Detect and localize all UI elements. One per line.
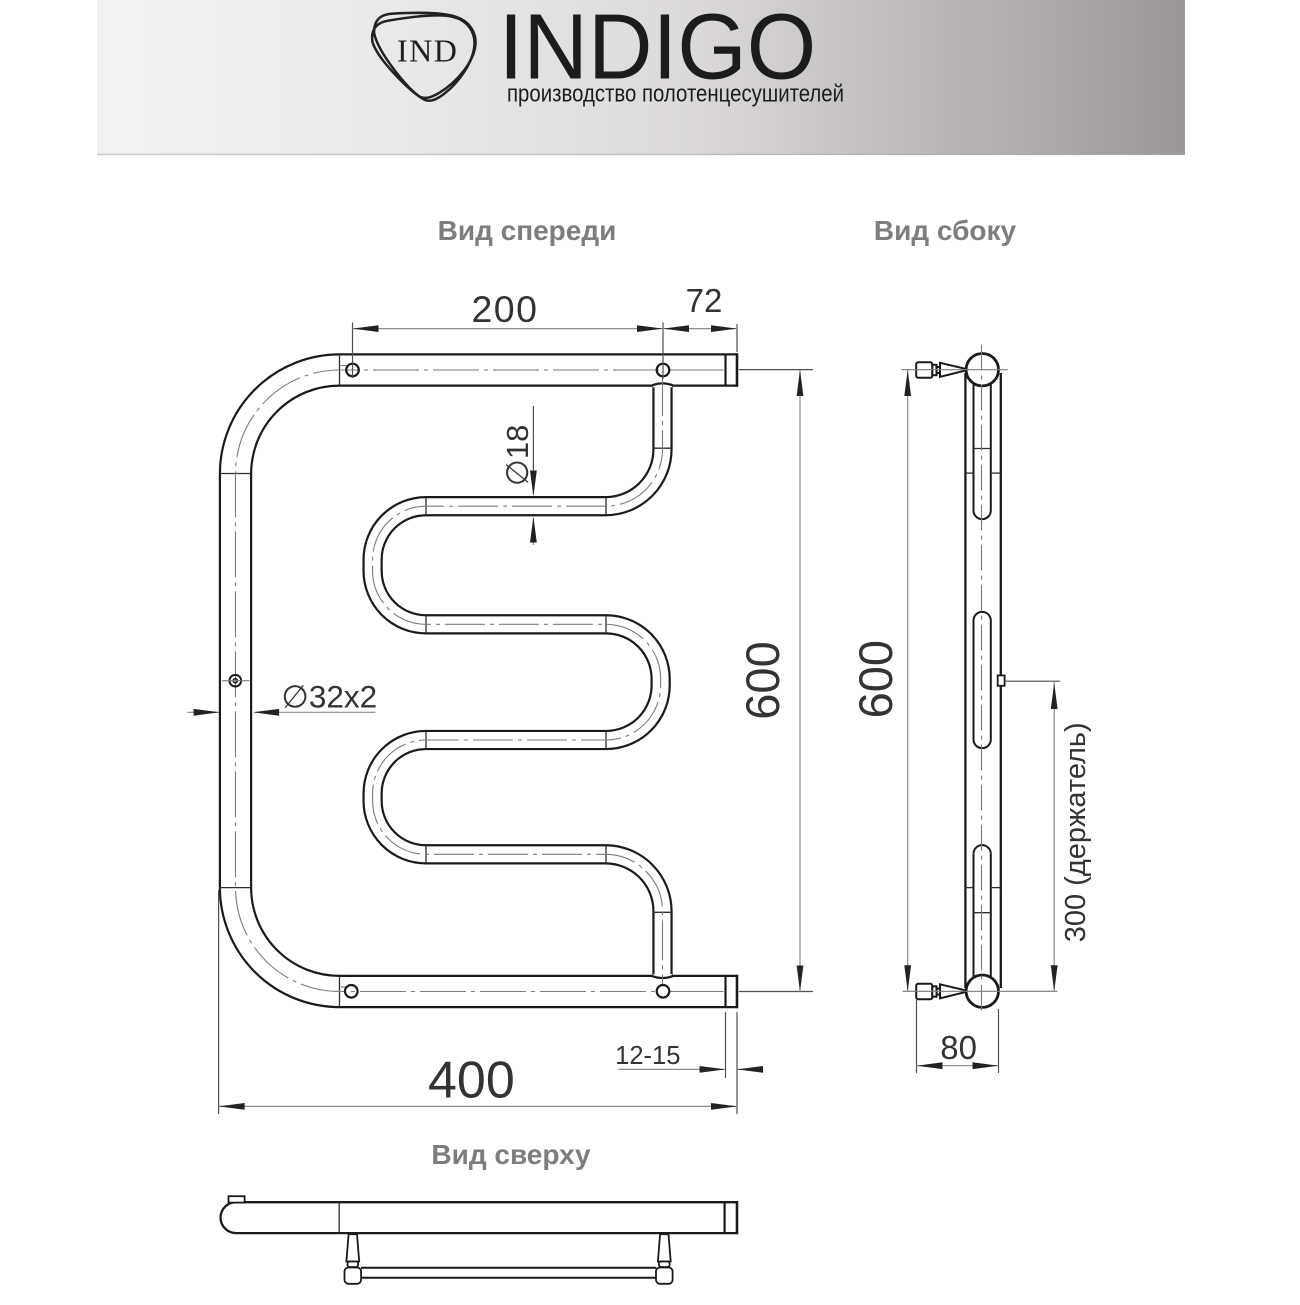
svg-text:600: 600 bbox=[849, 640, 902, 718]
svg-text:IND: IND bbox=[397, 33, 458, 69]
svg-text:80: 80 bbox=[940, 1029, 977, 1066]
svg-text:производство полотенцесушителе: производство полотенцесушителей bbox=[507, 81, 844, 108]
svg-text:Вид сверху: Вид сверху bbox=[431, 1139, 591, 1170]
svg-text:300 (держатель): 300 (держатель) bbox=[1060, 722, 1092, 942]
svg-text:600: 600 bbox=[736, 641, 789, 719]
svg-text:400: 400 bbox=[428, 1052, 515, 1110]
svg-text:∅32x2: ∅32x2 bbox=[281, 679, 377, 715]
svg-text:200: 200 bbox=[471, 288, 538, 330]
svg-text:∅18: ∅18 bbox=[500, 425, 535, 487]
svg-text:Вид сбоку: Вид сбоку bbox=[874, 215, 1017, 246]
svg-text:72: 72 bbox=[686, 282, 723, 319]
svg-text:12-15: 12-15 bbox=[615, 1042, 680, 1070]
svg-text:Вид спереди: Вид спереди bbox=[438, 215, 617, 246]
